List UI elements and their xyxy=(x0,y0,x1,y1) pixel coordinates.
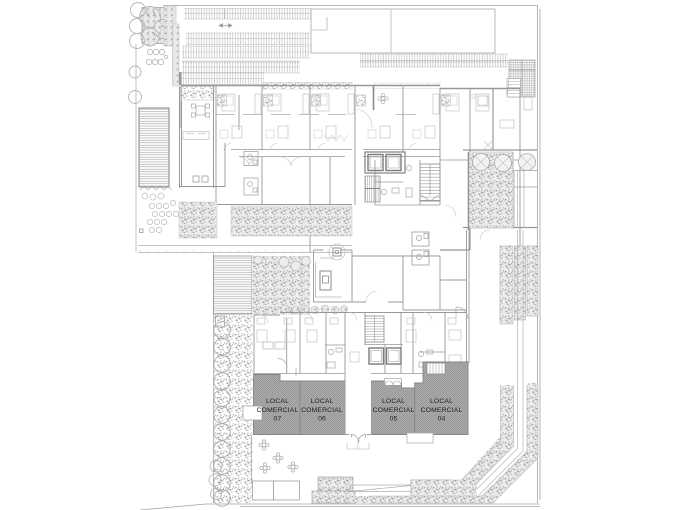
svg-text:COMERCIAL: COMERCIAL xyxy=(373,407,415,414)
svg-text:COMERCIAL: COMERCIAL xyxy=(421,407,463,414)
svg-text:06: 06 xyxy=(318,416,326,423)
svg-text:04: 04 xyxy=(438,416,446,423)
svg-text:LOCAL: LOCAL xyxy=(430,398,453,405)
svg-text:COMERCIAL: COMERCIAL xyxy=(301,407,343,414)
svg-text:COMERCIAL: COMERCIAL xyxy=(257,407,299,414)
svg-text:05: 05 xyxy=(390,416,398,423)
svg-text:LOCAL: LOCAL xyxy=(310,398,333,405)
svg-text:LOCAL: LOCAL xyxy=(382,398,405,405)
svg-text:LOCAL: LOCAL xyxy=(266,398,289,405)
svg-text:07: 07 xyxy=(274,416,282,423)
